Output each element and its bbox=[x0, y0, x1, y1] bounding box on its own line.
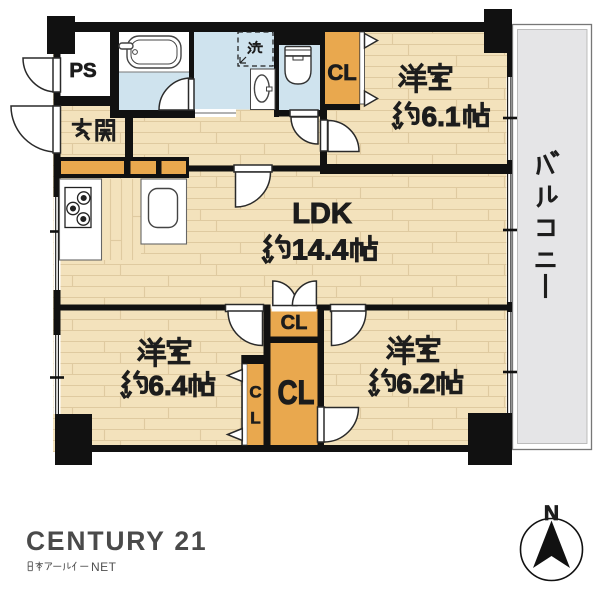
svg-text:CL: CL bbox=[327, 60, 356, 85]
svg-text:C: C bbox=[249, 383, 261, 402]
svg-text:PS: PS bbox=[69, 59, 96, 82]
svg-text:14.4: 14.4 bbox=[292, 235, 348, 267]
svg-text:6.2: 6.2 bbox=[396, 368, 435, 399]
svg-text:CL: CL bbox=[281, 312, 308, 334]
svg-text:LDK: LDK bbox=[292, 198, 352, 230]
svg-text:CL: CL bbox=[278, 374, 315, 412]
svg-text:CENTURY 21: CENTURY 21 bbox=[26, 526, 207, 556]
svg-text:NET: NET bbox=[91, 560, 117, 574]
svg-text:N: N bbox=[544, 502, 559, 525]
svg-text:L: L bbox=[250, 409, 260, 428]
svg-text:6.4: 6.4 bbox=[148, 370, 187, 401]
svg-text:6.1: 6.1 bbox=[422, 101, 461, 132]
